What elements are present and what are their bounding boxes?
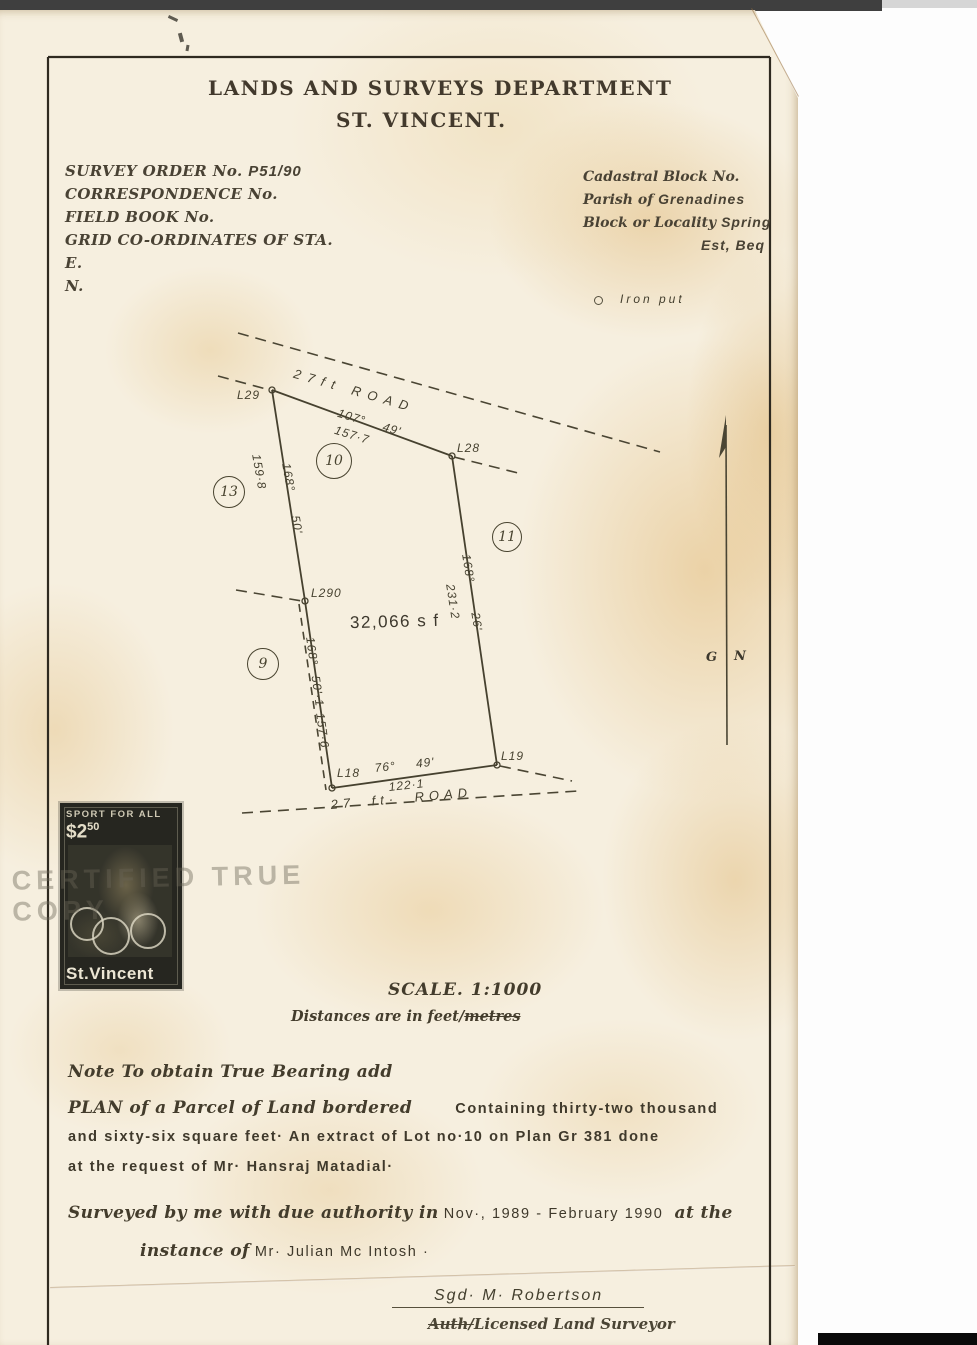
lot-number-10: 10 bbox=[325, 453, 343, 469]
lot-number-9: 9 bbox=[259, 656, 268, 672]
instance-name: Mr· Julian Mc Intosh · bbox=[255, 1244, 430, 1260]
true-bearing-note: Note To obtain True Bearing add bbox=[68, 1062, 393, 1082]
signature-name: Sgd· M· Robertson bbox=[434, 1287, 603, 1305]
locality-label: Block or Locality bbox=[583, 215, 716, 231]
stamp-country-text: St.Vincent bbox=[66, 964, 154, 984]
corner-label-l18: L18 bbox=[337, 766, 360, 780]
plan-description-line3: at the request of Mr· Hansraj Matadial· bbox=[68, 1159, 394, 1175]
plan-description-line2: and sixty-six square feet· An extract of… bbox=[68, 1129, 660, 1145]
stamp-cents: 50 bbox=[87, 821, 99, 833]
grid-north-n-label: N bbox=[734, 649, 746, 664]
scale-label: SCALE. 1:1000 bbox=[388, 980, 542, 1000]
correspondence-label: CORRESPONDENCE No. bbox=[65, 183, 333, 206]
corner-label-l29: L29 bbox=[237, 388, 260, 402]
lot-circle-10: 10 bbox=[316, 443, 352, 479]
plan-description-sans: Containing thirty-two thousand bbox=[455, 1101, 718, 1117]
plan-description-serif: PLAN of a Parcel of Land bordered bbox=[68, 1098, 412, 1118]
parish-label: Parish of bbox=[583, 192, 653, 208]
locality-value: Spring bbox=[721, 214, 771, 230]
surveyed-by-serif: Surveyed by me with due authority in bbox=[68, 1203, 439, 1223]
grid-coordinates-label: GRID CO-ORDINATES OF STA. bbox=[65, 229, 333, 252]
signature-role-text: Licensed Land Surveyor bbox=[474, 1315, 675, 1333]
stamp-denomination: $250 bbox=[66, 821, 99, 843]
signature-role-struck: Auth/ bbox=[428, 1315, 474, 1333]
corner-label-l19: L19 bbox=[501, 749, 524, 763]
parcel-area-label: 32,066 s f bbox=[350, 611, 440, 633]
scanner-edge-top-right bbox=[882, 0, 977, 8]
stamp-header-text: SPORT FOR ALL bbox=[66, 809, 162, 820]
instance-serif: instance of bbox=[140, 1241, 250, 1261]
stamp-dollars: $2 bbox=[66, 821, 87, 842]
surveyed-by-dates: Nov·, 1989 - February 1990 bbox=[444, 1206, 664, 1222]
instance-line: instance of Mr· Julian Mc Intosh · bbox=[140, 1241, 429, 1261]
corner-label-l28: L28 bbox=[457, 441, 480, 455]
corner-label-l290: L290 bbox=[311, 586, 342, 600]
cadastral-block-label: Cadastral Block No. bbox=[583, 166, 765, 188]
field-book-label: FIELD BOOK No. bbox=[65, 206, 333, 229]
lot-circle-13: 13 bbox=[213, 476, 245, 508]
grid-north-g-label: G bbox=[706, 650, 717, 665]
info-right-block: Cadastral Block No. Parish of Grenadines… bbox=[583, 166, 765, 256]
lot-circle-11: 11 bbox=[492, 522, 522, 552]
iron-pin-icon bbox=[594, 296, 603, 305]
surveyed-by-line: Surveyed by me with due authority in Nov… bbox=[68, 1203, 733, 1223]
department-title: LANDS AND SURVEYS DEPARTMENT bbox=[208, 76, 672, 100]
scanned-survey-document: LANDS AND SURVEYS DEPARTMENT ST. VINCENT… bbox=[0, 0, 977, 1345]
plan-description-line1: PLAN of a Parcel of Land bordered Contai… bbox=[68, 1098, 718, 1118]
certified-true-copy-overprint: CERTIFIED TRUE COPY bbox=[11, 858, 372, 928]
estate-value: Est, Beq bbox=[583, 234, 765, 256]
surveyed-by-tail: at the bbox=[675, 1203, 733, 1223]
distances-note: Distances are in feet/metres bbox=[291, 1008, 521, 1025]
distances-note-struck-metres: metres bbox=[464, 1008, 520, 1025]
territory-title: ST. VINCENT. bbox=[336, 108, 507, 132]
iron-pin-legend-label: Iron put bbox=[620, 292, 685, 306]
signature-role: Auth/Licensed Land Surveyor bbox=[428, 1315, 675, 1333]
parish-value: Grenadines bbox=[658, 191, 745, 207]
survey-order-value: P51/90 bbox=[248, 163, 302, 180]
signature-underline bbox=[392, 1307, 644, 1308]
scanner-edge-top bbox=[0, 0, 882, 11]
info-left-block: SURVEY ORDER No. P51/90 CORRESPONDENCE N… bbox=[65, 160, 333, 298]
lot-number-11: 11 bbox=[498, 529, 516, 545]
lot-circle-9: 9 bbox=[247, 648, 279, 680]
lot-number-13: 13 bbox=[220, 484, 238, 500]
easting-label: E. bbox=[65, 252, 333, 275]
northing-label: N. bbox=[65, 275, 333, 298]
scanner-edge-bottom bbox=[818, 1333, 977, 1345]
survey-order-label: SURVEY ORDER No. bbox=[65, 162, 243, 180]
distances-note-prefix: Distances are in feet/ bbox=[291, 1008, 464, 1025]
